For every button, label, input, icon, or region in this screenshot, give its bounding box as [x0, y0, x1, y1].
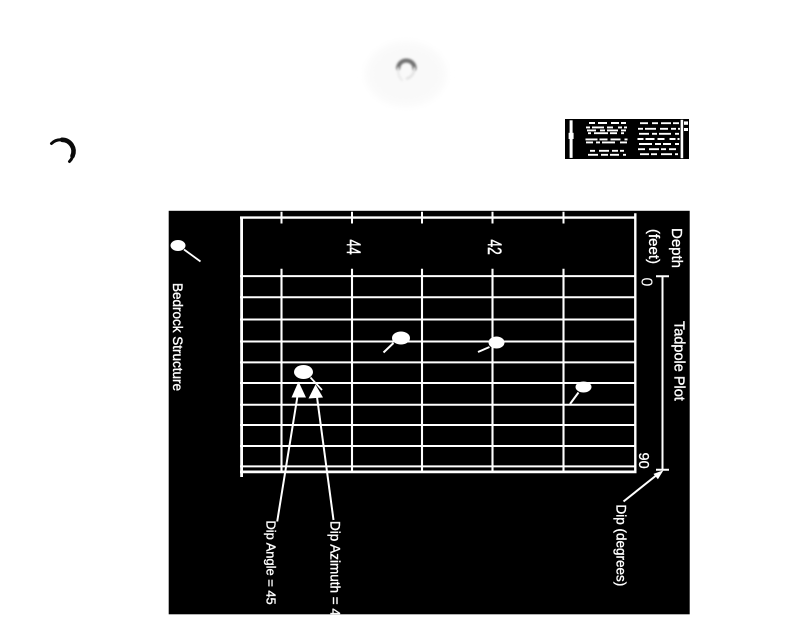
svg-text:Depth: Depth	[668, 228, 685, 268]
svg-text:(feet): (feet)	[645, 229, 662, 264]
svg-text:Dip Angle = 45: Dip Angle = 45	[264, 521, 279, 605]
svg-text:Tadpole Plot: Tadpole Plot	[671, 321, 687, 401]
svg-text:44: 44	[342, 240, 364, 255]
svg-text:90: 90	[635, 453, 651, 469]
svg-text:Bedrock Structure: Bedrock Structure	[170, 283, 185, 391]
svg-text:42: 42	[483, 240, 505, 255]
svg-text:0: 0	[638, 278, 655, 287]
svg-text:Dip (degrees): Dip (degrees)	[614, 505, 629, 587]
svg-text:Dip Azimuth = 40: Dip Azimuth = 40	[328, 521, 343, 618]
